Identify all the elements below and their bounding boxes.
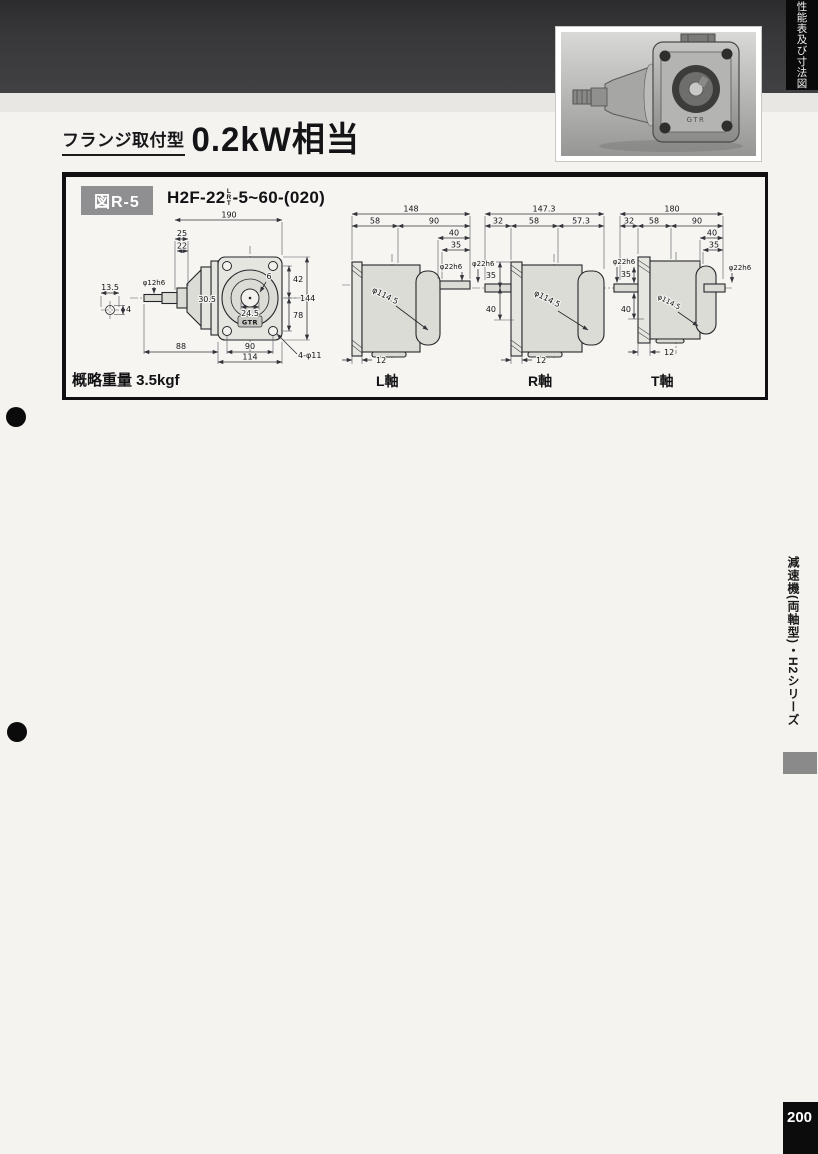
dim-label: 12 (536, 356, 546, 365)
dim-label: 88 (176, 342, 186, 351)
t-axis-drawing: 180 32 58 90 40 35 φ22h6 35 40 φ22h6 φ11… (612, 206, 768, 371)
dim-label: 12 (376, 356, 386, 365)
dim-label: 4 (126, 305, 131, 314)
dim-label: 78 (293, 311, 303, 320)
r-axis-label: R軸 (528, 371, 552, 391)
dim-label: φ22h6 (729, 264, 752, 272)
dim-label: 4-φ11 (298, 351, 321, 360)
dim-label: 147.3 (533, 205, 556, 214)
dim-label: 6 (266, 272, 271, 281)
model-suffix: -5~60-(020) (233, 188, 326, 208)
dim-label: 13.5 (101, 283, 119, 292)
page-number-box: 200 (783, 1102, 818, 1154)
dim-label: 90 (429, 217, 439, 226)
dim-label: 148 (403, 205, 418, 214)
model-axis-options: L R T (227, 189, 232, 207)
dim-label: 58 (370, 217, 380, 226)
dim-label: 24.5 (241, 309, 259, 318)
dim-label: 114 (242, 353, 257, 362)
dim-label: 58 (649, 217, 659, 226)
dim-label: 40 (486, 305, 496, 314)
dim-label: 35 (486, 271, 496, 280)
model-prefix: H2F-22 (167, 188, 226, 208)
dim-label: φ12h6 (143, 279, 166, 287)
r-axis-drawing: 147.3 32 58 57.3 φ22h6 35 40 φ114.5 12 (470, 206, 612, 371)
dim-label: φ22h6 (472, 260, 495, 268)
dim-label: 90 (245, 342, 255, 351)
dim-label: 58 (529, 217, 539, 226)
dim-label: 35 (451, 241, 461, 250)
dim-label: 32 (624, 217, 634, 226)
dim-label: 57.3 (572, 217, 590, 226)
dim-label: 90 (692, 217, 702, 226)
dim-label: 42 (293, 275, 303, 284)
page-header: フランジ取付型 0.2kW相当 (62, 123, 360, 156)
weight-label: 概略重量 3.5kgf (72, 369, 180, 390)
dim-label: 180 (664, 205, 679, 214)
figure-box: 図R-5 H2F-22 L R T -5~60-(020) GTR (62, 172, 768, 400)
dim-label: φ22h6 (440, 263, 463, 271)
dim-label: 32 (493, 217, 503, 226)
dim-label: 40 (449, 229, 459, 238)
page-number: 200 (787, 1109, 812, 1126)
dim-label: 144 (300, 294, 315, 303)
drawing-logo: GTR (242, 319, 258, 327)
top-index-tab: 性能表及び寸法図 (786, 0, 818, 90)
mount-type-label: フランジ取付型 (62, 126, 185, 156)
punch-hole (7, 722, 27, 742)
side-tab-marker (783, 752, 817, 774)
dim-label: 25 (177, 229, 187, 238)
dim-label: 30.5 (198, 295, 216, 304)
dim-label: 190 (221, 211, 236, 220)
dim-label: 12 (664, 348, 674, 357)
side-series-label: 減速機(両軸型)・H2シリーズ (786, 556, 802, 752)
dim-label: φ22h6 (613, 258, 636, 266)
l-axis-drawing: 148 58 90 40 35 φ22h6 φ114.5 12 (338, 206, 470, 371)
model-number: H2F-22 L R T -5~60-(020) (167, 188, 325, 208)
punch-hole (6, 407, 26, 427)
dim-label: 22 (177, 242, 187, 251)
dim-label: 40 (707, 229, 717, 238)
dim-label: 35 (709, 241, 719, 250)
t-axis-label: T軸 (651, 371, 674, 391)
l-axis-label: L軸 (376, 371, 399, 391)
dim-label: 35 (621, 270, 631, 279)
photo-logo: GTR (687, 116, 706, 124)
product-photo: GTR (556, 27, 761, 161)
dim-label: 40 (621, 305, 631, 314)
power-rating-title: 0.2kW相当 (192, 122, 360, 156)
gear-motor-photo-illustration: GTR (561, 32, 756, 156)
front-view-drawing: GTR 13.5 4 φ12h6 25 (92, 206, 338, 371)
